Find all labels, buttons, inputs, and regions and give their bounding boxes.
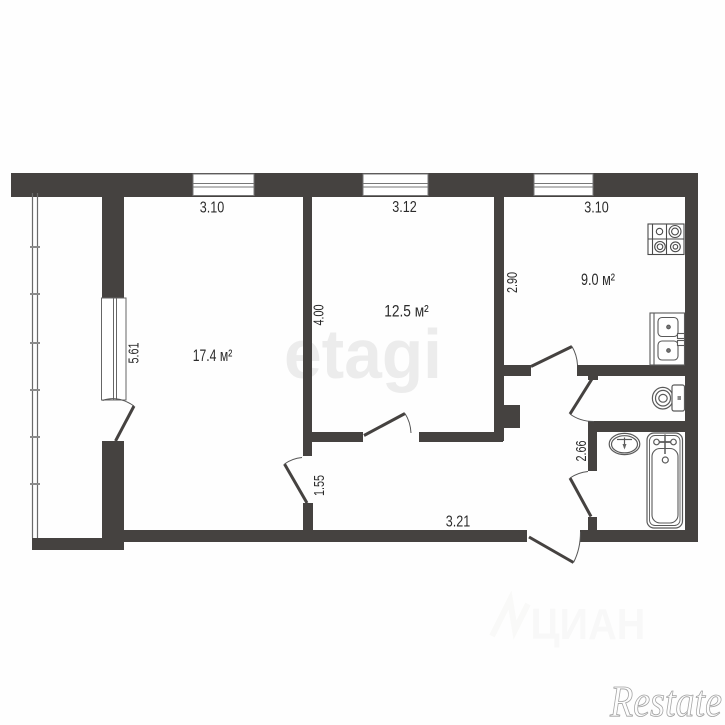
- svg-text:ЦИАН: ЦИАН: [531, 600, 646, 649]
- svg-text:Restate: Restate: [609, 677, 722, 725]
- svg-text:2.90: 2.90: [504, 272, 521, 293]
- svg-text:5.61: 5.61: [125, 343, 142, 364]
- svg-text:1.55: 1.55: [311, 475, 328, 496]
- svg-text:3.12: 3.12: [392, 199, 417, 216]
- svg-text:9.0 м²: 9.0 м²: [581, 270, 615, 289]
- svg-text:3.10: 3.10: [200, 199, 225, 216]
- svg-text:12.5 м²: 12.5 м²: [384, 302, 429, 321]
- svg-text:17.4 м²: 17.4 м²: [193, 346, 233, 365]
- svg-text:3.21: 3.21: [446, 513, 471, 530]
- svg-text:2.66: 2.66: [573, 441, 590, 462]
- svg-text:4.00: 4.00: [311, 305, 328, 326]
- svg-text:3.10: 3.10: [584, 199, 609, 216]
